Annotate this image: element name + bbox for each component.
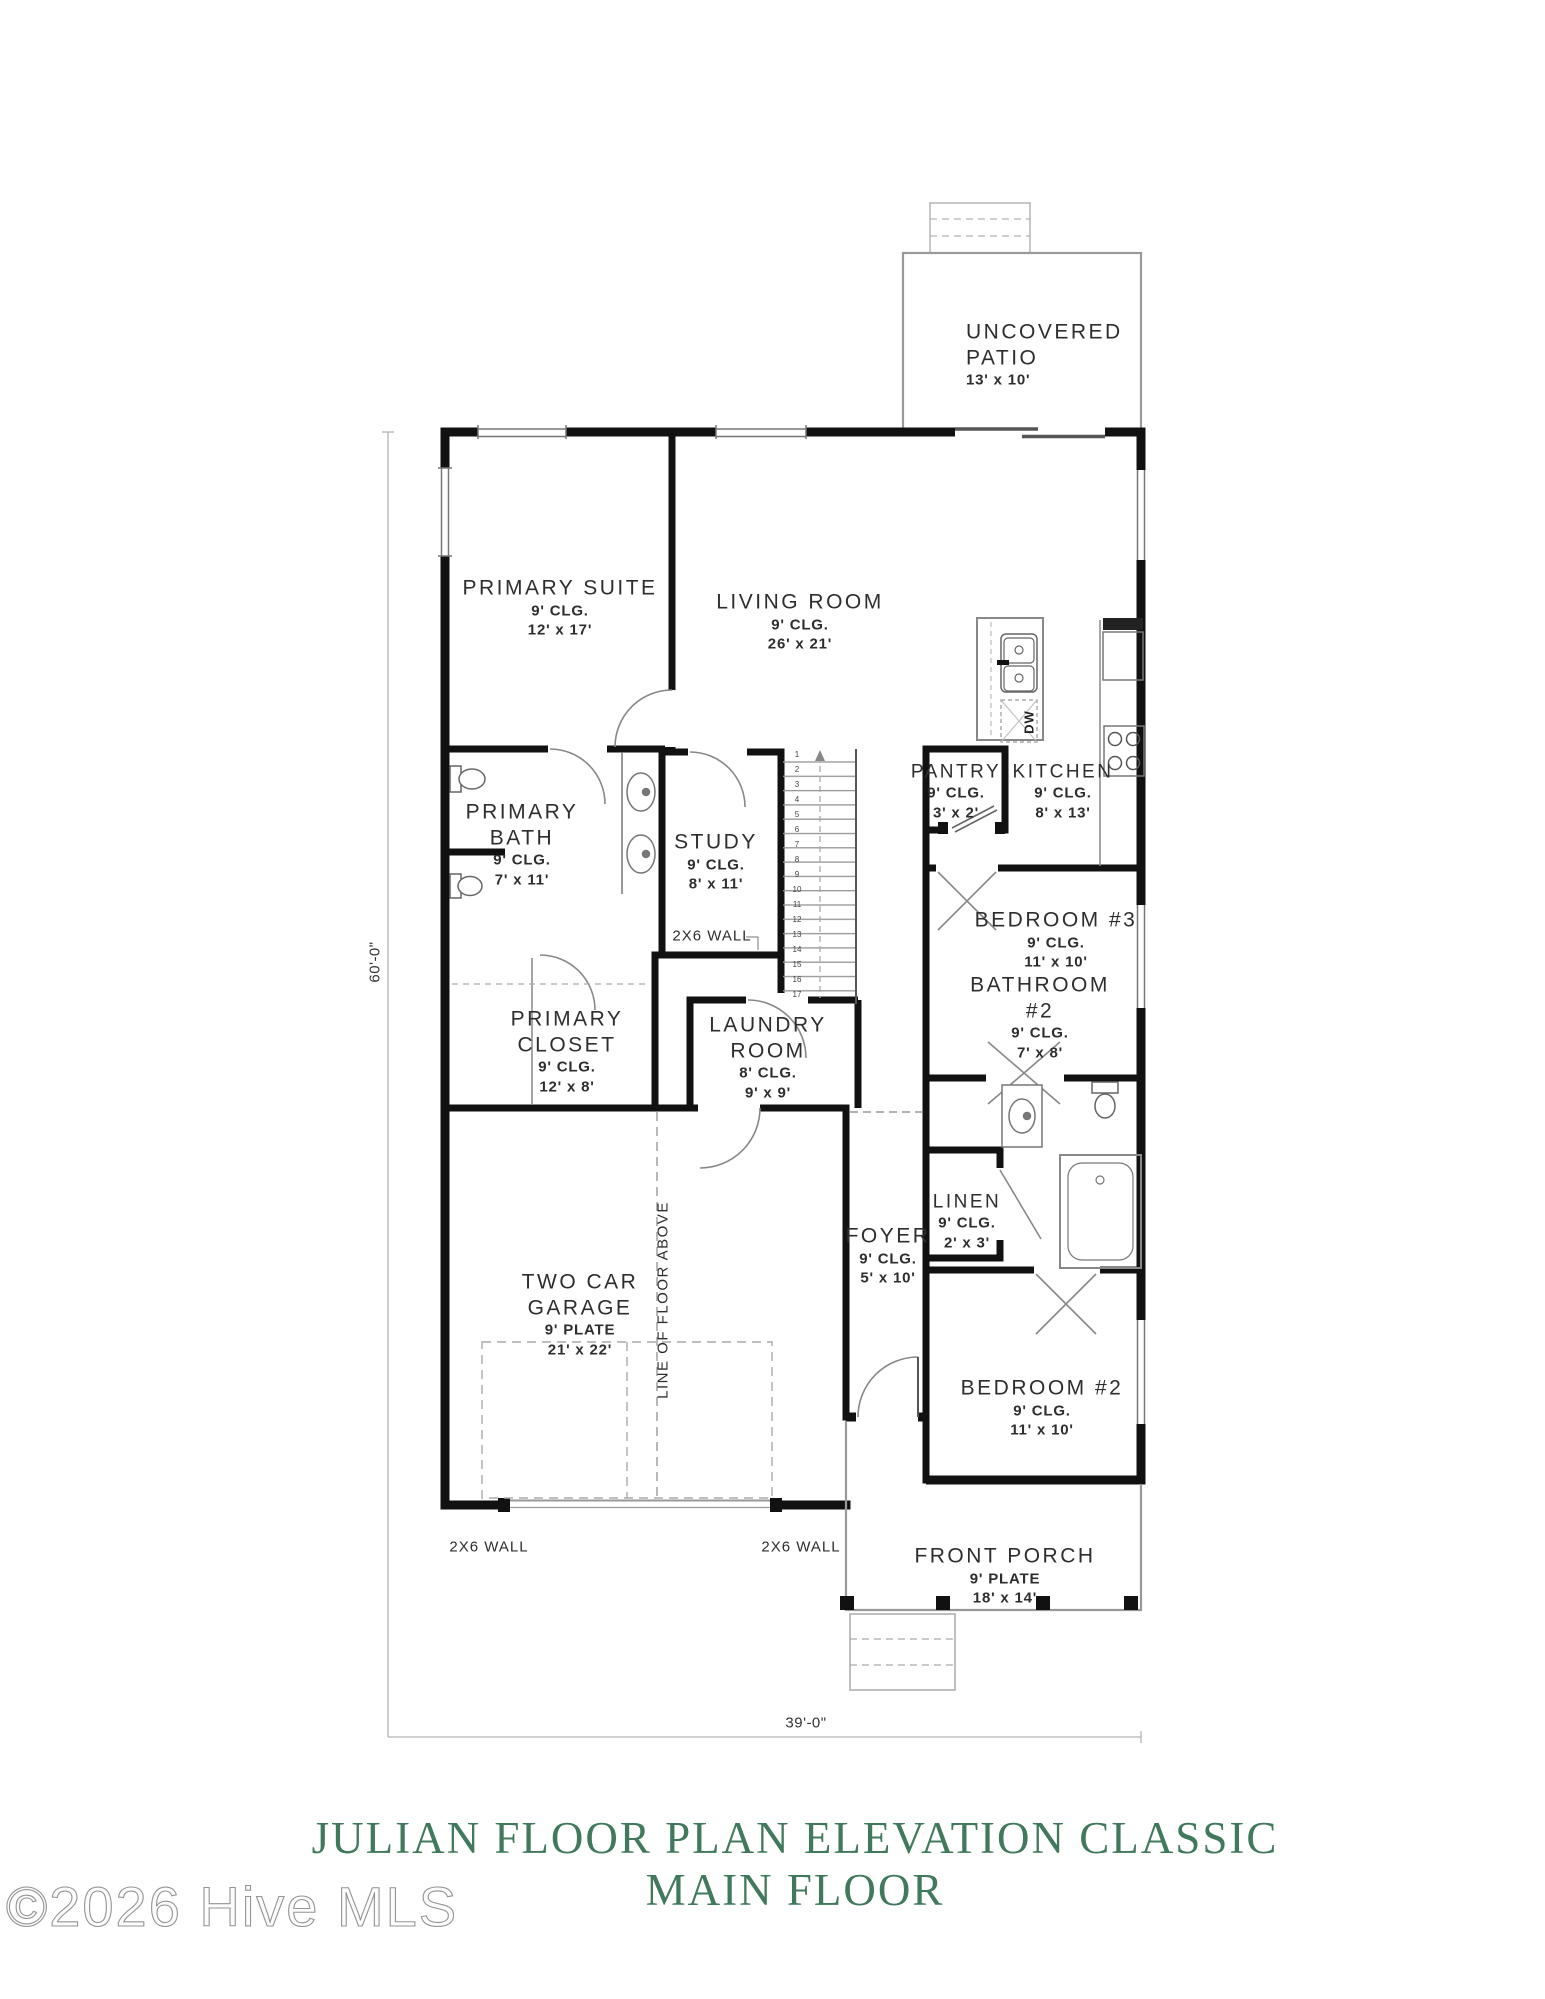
room-label-front-porch: FRONT PORCH 9' PLATE 18' x 14'	[914, 1543, 1095, 1608]
room-label-study: STUDY 9' CLG. 8' x 11'	[674, 829, 758, 894]
stair-tread-number: 11	[793, 901, 801, 909]
stair-tread-number: 9	[795, 871, 799, 879]
dimension-height: 60'-0"	[367, 941, 384, 982]
stair-tread-number: 7	[795, 841, 799, 849]
floor-plan-page: UNCOVERED PATIO 13' x 10' PRIMARY SUITE …	[0, 0, 1545, 1999]
stair-tread-number: 16	[793, 976, 802, 984]
stair-tread-number: 13	[793, 931, 802, 939]
room-label-kitchen: KITCHEN 9' CLG. 8' x 13'	[1013, 761, 1114, 824]
floor-plan-drawing	[0, 0, 1545, 1999]
patio-outline	[903, 203, 1141, 432]
room-label-primary-bath: PRIMARY BATH 9' CLG. 7' x 11'	[466, 800, 579, 891]
stair-tread-number: 5	[795, 811, 799, 819]
stair-tread-numbers: 1234567891011121314151617	[788, 751, 806, 999]
stair-tread-number: 6	[795, 826, 799, 834]
stair-tread-number: 17	[793, 991, 802, 999]
wall-note-garage-right: 2X6 WALL	[761, 1539, 840, 1556]
stair-tread-number: 15	[793, 961, 802, 969]
room-label-uncovered-patio: UNCOVERED PATIO 13' x 10'	[966, 319, 1123, 390]
wall-note-study: 2X6 WALL	[672, 928, 751, 945]
dimension-width: 39'-0"	[785, 1715, 826, 1732]
bathroom2-fixtures	[1002, 1082, 1141, 1268]
room-label-bathroom-2: BATHROOM #2 9' CLG. 7' x 8'	[970, 973, 1110, 1064]
room-label-primary-closet: PRIMARY CLOSET 9' CLG. 12' x 8'	[511, 1007, 624, 1098]
garage-door-header	[498, 1498, 782, 1512]
room-label-laundry-room: LAUNDRY ROOM 8' CLG. 9' x 9'	[709, 1013, 826, 1104]
stair-tread-number: 3	[795, 781, 799, 789]
plan-title-line1: JULIAN FLOOR PLAN ELEVATION CLASSIC	[312, 1812, 1279, 1864]
room-label-primary-suite: PRIMARY SUITE 9' CLG. 12' x 17'	[462, 575, 657, 640]
room-label-living-room: LIVING ROOM 9' CLG. 26' x 21'	[716, 589, 884, 654]
stair-tread-number: 12	[793, 916, 802, 924]
plan-title-line2: MAIN FLOOR	[646, 1864, 945, 1916]
wall-note-garage-left: 2X6 WALL	[449, 1539, 528, 1556]
mls-watermark: ©2026 Hive MLS	[6, 1874, 458, 1939]
stair-tread-number: 10	[793, 886, 802, 894]
room-label-pantry: PANTRY 9' CLG. 3' x 2'	[911, 761, 1001, 824]
dishwasher-label: DW	[1022, 710, 1037, 734]
stair-tread-number: 14	[793, 946, 802, 954]
line-of-floor-above-note: LINE OF FLOOR ABOVE	[655, 1201, 672, 1399]
room-label-linen: LINEN 9' CLG. 2' x 3'	[933, 1191, 1001, 1254]
room-label-foyer: FOYER 9' CLG. 5' x 10'	[846, 1223, 931, 1288]
stair-tread-number: 4	[795, 796, 799, 804]
room-label-bedroom-2: BEDROOM #2 9' CLG. 11' x 10'	[961, 1375, 1124, 1440]
stair-tread-number: 2	[795, 766, 799, 774]
room-label-two-car-garage: TWO CAR GARAGE 9' PLATE 21' x 22'	[522, 1270, 639, 1361]
stair-tread-number: 8	[795, 856, 799, 864]
room-label-bedroom-3: BEDROOM #3 9' CLG. 11' x 10'	[975, 907, 1138, 972]
stair-tread-number: 1	[795, 751, 799, 759]
